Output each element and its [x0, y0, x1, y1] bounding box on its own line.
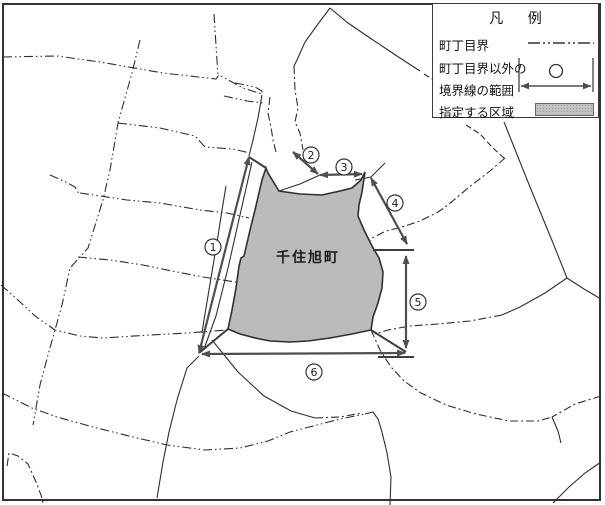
- map-document: 千住旭町 123456 凡 例 町丁目界 町丁目界以外の: [0, 0, 605, 505]
- segment-marker-number: 6: [311, 366, 318, 379]
- segment-marker-number: 1: [210, 241, 217, 254]
- chome-boundary-line-symbol: [526, 37, 596, 49]
- legend-range-label-line1: 町丁目界以外の: [439, 58, 527, 77]
- segment-marker-number: 4: [392, 197, 399, 210]
- legend-chome-boundary-label: 町丁目界: [439, 35, 489, 54]
- segment-marker-number: 5: [415, 296, 422, 309]
- range-arrow-symbol: [515, 56, 597, 96]
- designated-area-swatch: [535, 103, 594, 116]
- legend-designated-area-label: 指定する区域: [439, 102, 514, 121]
- measure-arrow-4: [371, 178, 407, 244]
- area-label: 千住旭町: [276, 249, 340, 266]
- segment-marker-number: 2: [308, 149, 315, 162]
- legend: 凡 例 町丁目界 町丁目界以外の 境界線の範囲 指定する区域: [432, 3, 599, 118]
- segment-marker-number: 3: [341, 161, 348, 174]
- measure-arrow-6: [202, 353, 405, 354]
- legend-title: 凡 例: [433, 8, 598, 28]
- legend-range-label-line2: 境界線の範囲: [439, 80, 514, 99]
